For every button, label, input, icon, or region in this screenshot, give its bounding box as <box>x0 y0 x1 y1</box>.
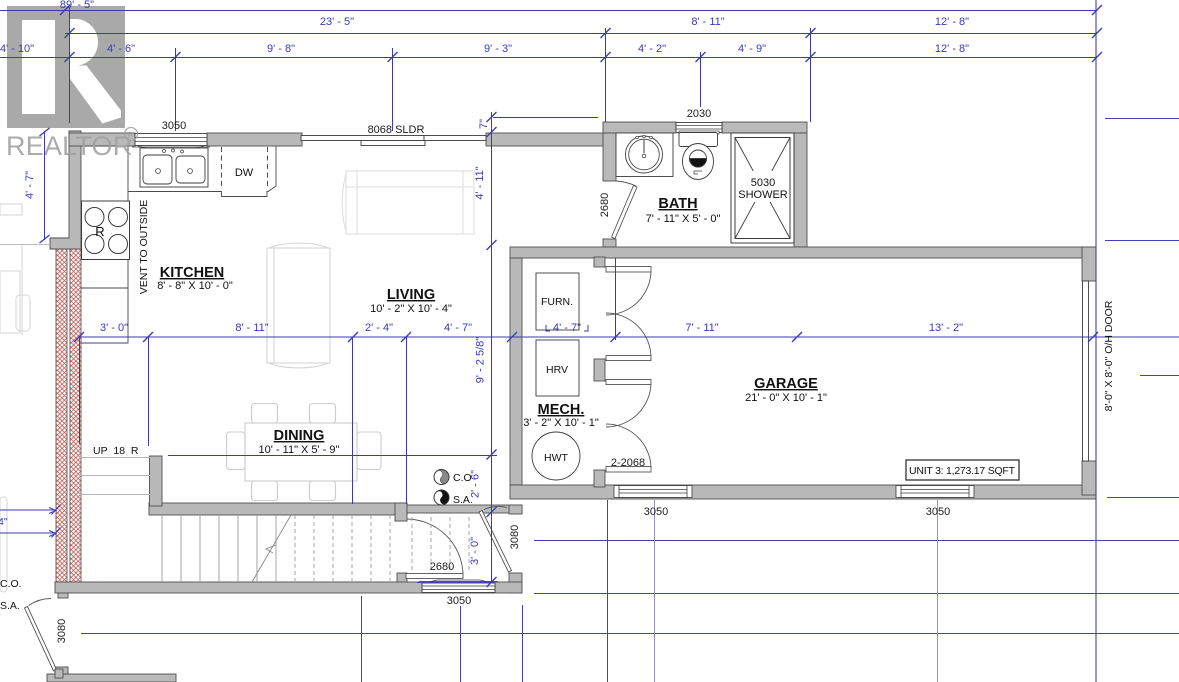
svg-text:R: R <box>128 131 135 141</box>
svg-text:5030: 5030 <box>751 177 775 189</box>
svg-text:C.O: C.O <box>453 472 472 484</box>
svg-text:12' - 8": 12' - 8" <box>935 16 969 28</box>
svg-text:DINING: DINING <box>274 428 325 444</box>
svg-text:10' - 2" X 10' - 4": 10' - 2" X 10' - 4" <box>370 303 452 315</box>
svg-text:2-2068: 2-2068 <box>611 457 645 469</box>
svg-text:HWT: HWT <box>544 452 568 464</box>
svg-text:7' - 11" X 5' - 0": 7' - 11" X 5' - 0" <box>646 213 721 225</box>
svg-text:10' - 11" X 5' - 9": 10' - 11" X 5' - 9" <box>259 444 340 456</box>
svg-text:13' - 2": 13' - 2" <box>929 322 963 334</box>
svg-text:4' - 2": 4' - 2" <box>638 43 666 55</box>
svg-text:S.A.: S.A. <box>453 494 473 506</box>
svg-text:DW: DW <box>235 167 254 179</box>
svg-text:8' - 11": 8' - 11" <box>235 322 268 334</box>
svg-text:2' - 4": 2' - 4" <box>365 322 393 334</box>
svg-text:4' - 7": 4' - 7" <box>24 171 36 199</box>
svg-text:FURN.: FURN. <box>541 296 573 308</box>
svg-text:8' - 11": 8' - 11" <box>691 16 724 28</box>
svg-text:4' - 11": 4' - 11" <box>474 166 486 199</box>
svg-text:8'-0" X 8'-0" O/H DOOR: 8'-0" X 8'-0" O/H DOOR <box>1103 300 1115 411</box>
svg-text:BATH: BATH <box>658 196 697 212</box>
svg-text:9' - 3": 9' - 3" <box>484 43 512 55</box>
svg-text:3050: 3050 <box>447 595 471 607</box>
svg-text:3050: 3050 <box>162 120 186 132</box>
svg-text:2680: 2680 <box>599 193 611 217</box>
svg-text:4' - 6": 4' - 6" <box>107 43 135 55</box>
svg-text:4' - 10": 4' - 10" <box>0 43 34 55</box>
svg-text:7": 7" <box>478 119 490 129</box>
svg-text:23' - 5": 23' - 5" <box>320 16 354 28</box>
svg-text:SHOWER: SHOWER <box>738 189 788 201</box>
svg-text:89' - 5": 89' - 5" <box>60 0 94 11</box>
svg-text:HRV: HRV <box>546 364 568 376</box>
svg-text:UNIT 3: 1,273.17 SQFT: UNIT 3: 1,273.17 SQFT <box>909 465 1016 477</box>
svg-text:S.A.: S.A. <box>0 600 20 612</box>
svg-text:4": 4" <box>0 516 8 528</box>
svg-text:UP 18 R: UP 18 R <box>93 445 139 457</box>
svg-text:LIVING: LIVING <box>387 287 435 303</box>
svg-text:REALTOR: REALTOR <box>6 131 132 161</box>
svg-text:3050: 3050 <box>926 506 950 518</box>
svg-text:3080: 3080 <box>509 525 521 549</box>
svg-text:4' - 7": 4' - 7" <box>444 322 472 334</box>
svg-text:2030: 2030 <box>687 108 711 120</box>
svg-text:12' - 8": 12' - 8" <box>935 43 969 55</box>
svg-text:2680: 2680 <box>430 561 454 573</box>
svg-text:R: R <box>95 224 104 239</box>
svg-text:3' - 2" X 10' - 1": 3' - 2" X 10' - 1" <box>523 417 599 429</box>
svg-text:4' - 7": 4' - 7" <box>553 322 581 334</box>
svg-text:8' - 8" X 10' - 0": 8' - 8" X 10' - 0" <box>157 280 233 292</box>
svg-text:8068 SLDR: 8068 SLDR <box>368 124 425 136</box>
svg-text:3' - 0": 3' - 0" <box>469 537 481 565</box>
svg-text:21' - 0" X 10' - 1": 21' - 0" X 10' - 1" <box>745 392 827 404</box>
svg-text:C.O.: C.O. <box>0 578 22 590</box>
svg-text:3050: 3050 <box>644 506 668 518</box>
svg-text:MECH.: MECH. <box>538 402 585 418</box>
svg-text:GARAGE: GARAGE <box>754 376 818 392</box>
svg-text:9' - 2 5/8": 9' - 2 5/8" <box>475 337 487 383</box>
svg-text:4' - 9": 4' - 9" <box>738 43 766 55</box>
svg-text:3' - 0": 3' - 0" <box>100 322 128 334</box>
svg-text:9' - 8": 9' - 8" <box>267 43 295 55</box>
svg-text:3080: 3080 <box>56 619 68 643</box>
svg-text:KITCHEN: KITCHEN <box>160 265 224 281</box>
svg-text:7' - 11": 7' - 11" <box>685 322 718 334</box>
svg-text:VENT TO OUTSIDE: VENT TO OUTSIDE <box>138 200 150 295</box>
